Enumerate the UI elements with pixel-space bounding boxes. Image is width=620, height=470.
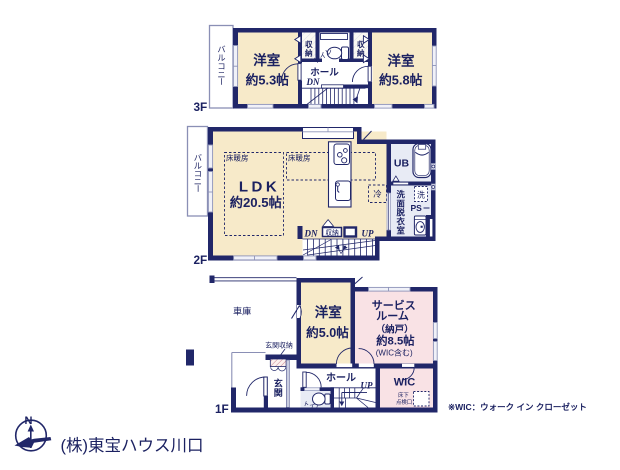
svg-text:約8.5帖: 約8.5帖	[376, 334, 415, 348]
svg-text:冷: 冷	[373, 189, 382, 199]
svg-text:収: 収	[305, 39, 313, 49]
svg-text:約5.3帖: 約5.3帖	[246, 73, 290, 88]
svg-text:3F: 3F	[194, 100, 208, 114]
svg-text:2F: 2F	[194, 253, 208, 267]
svg-text:DN: DN	[306, 77, 320, 87]
svg-text:玄: 玄	[274, 378, 283, 389]
svg-text:ホール: ホール	[326, 372, 356, 384]
svg-text:床下: 床下	[398, 391, 409, 399]
svg-text:室: 室	[397, 226, 406, 236]
svg-text:洋室: 洋室	[253, 52, 280, 68]
svg-text:N: N	[25, 415, 33, 427]
svg-text:洗: 洗	[417, 190, 425, 200]
svg-text:(WIC含む): (WIC含む)	[376, 348, 413, 358]
svg-text:納: 納	[305, 48, 313, 58]
svg-text:DN: DN	[304, 229, 318, 239]
svg-text:約5.0帖: 約5.0帖	[306, 325, 349, 340]
svg-text:UP: UP	[361, 380, 373, 390]
svg-text:ルーム: ルーム	[376, 310, 409, 323]
svg-text:洋室: 洋室	[388, 53, 415, 69]
svg-text:WIC: WIC	[394, 377, 415, 389]
svg-text:1F: 1F	[215, 402, 229, 416]
svg-text:(株)東宝ハウス川口: (株)東宝ハウス川口	[61, 436, 204, 455]
svg-text:PS: PS	[411, 203, 423, 213]
svg-text:関: 関	[274, 388, 283, 398]
svg-text:洋室: 洋室	[315, 304, 342, 320]
svg-text:点検口: 点検口	[396, 398, 412, 406]
svg-text:車庫: 車庫	[233, 306, 251, 317]
svg-text:約5.8帖: 約5.8帖	[379, 73, 423, 88]
svg-text:床暖房: 床暖房	[288, 153, 311, 163]
svg-text:LDK: LDK	[239, 179, 280, 196]
svg-text:約20.5帖: 約20.5帖	[230, 194, 282, 210]
svg-text:床暖房: 床暖房	[226, 153, 249, 163]
svg-text:UB: UB	[394, 158, 410, 170]
svg-text:（納戸）: （納戸）	[376, 323, 414, 335]
svg-text:収納: 収納	[325, 228, 339, 237]
svg-text:※WIC：ウォーク イン クローゼット: ※WIC：ウォーク イン クローゼット	[448, 402, 587, 412]
svg-text:ー: ー	[217, 77, 226, 85]
svg-text:ー: ー	[193, 184, 202, 192]
svg-text:玄関収納: 玄関収納	[265, 341, 293, 350]
svg-text:UP: UP	[362, 229, 374, 239]
